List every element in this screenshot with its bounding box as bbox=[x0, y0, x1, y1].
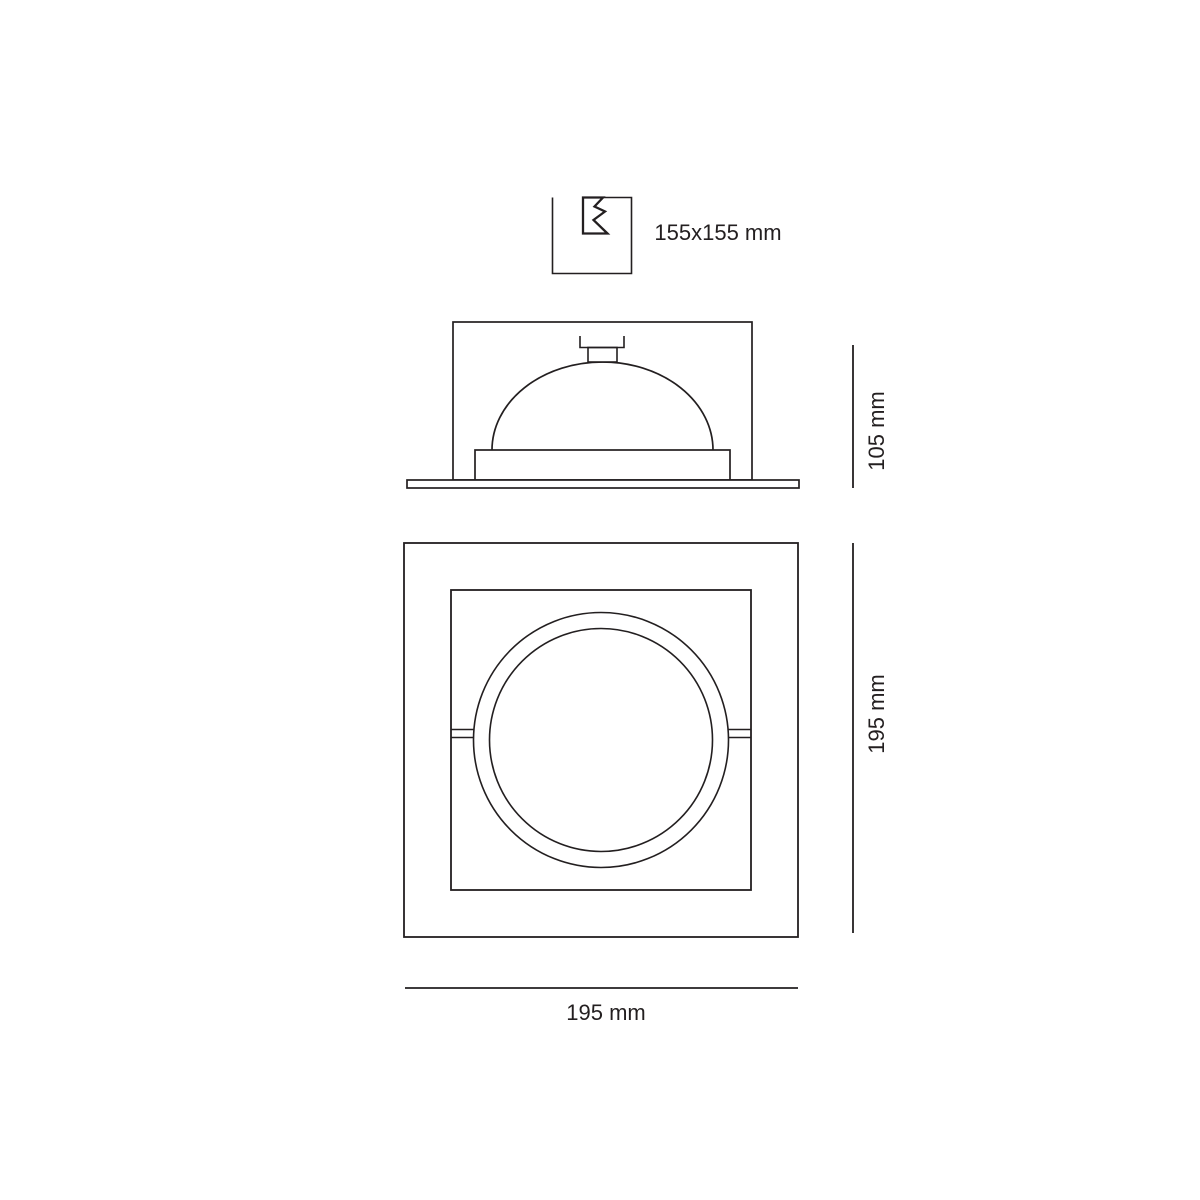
cutout-dimension-label: 155x155 mm bbox=[654, 222, 781, 244]
cutout-square bbox=[553, 198, 632, 274]
outer-frame bbox=[404, 543, 798, 937]
mount-bracket bbox=[580, 336, 624, 348]
front-view bbox=[404, 543, 853, 988]
cutout-tear-flap bbox=[583, 198, 608, 234]
side-depth-label: 105 mm bbox=[866, 391, 888, 470]
ceiling-cutout-icon bbox=[553, 198, 632, 274]
dome-base bbox=[475, 450, 730, 480]
dome-arc bbox=[492, 362, 713, 450]
front-width-label: 195 mm bbox=[566, 1002, 645, 1024]
technical-drawing-canvas: 155x155 mm 105 mm 195 mm 195 mm bbox=[0, 0, 1200, 1200]
trim-ring-outer bbox=[474, 613, 729, 868]
side-view bbox=[407, 322, 853, 488]
trim-ring-inner bbox=[490, 629, 713, 852]
flange-plate bbox=[407, 480, 799, 488]
stem-neck bbox=[588, 348, 617, 363]
front-height-label: 195 mm bbox=[866, 674, 888, 753]
inner-frame bbox=[451, 590, 751, 890]
